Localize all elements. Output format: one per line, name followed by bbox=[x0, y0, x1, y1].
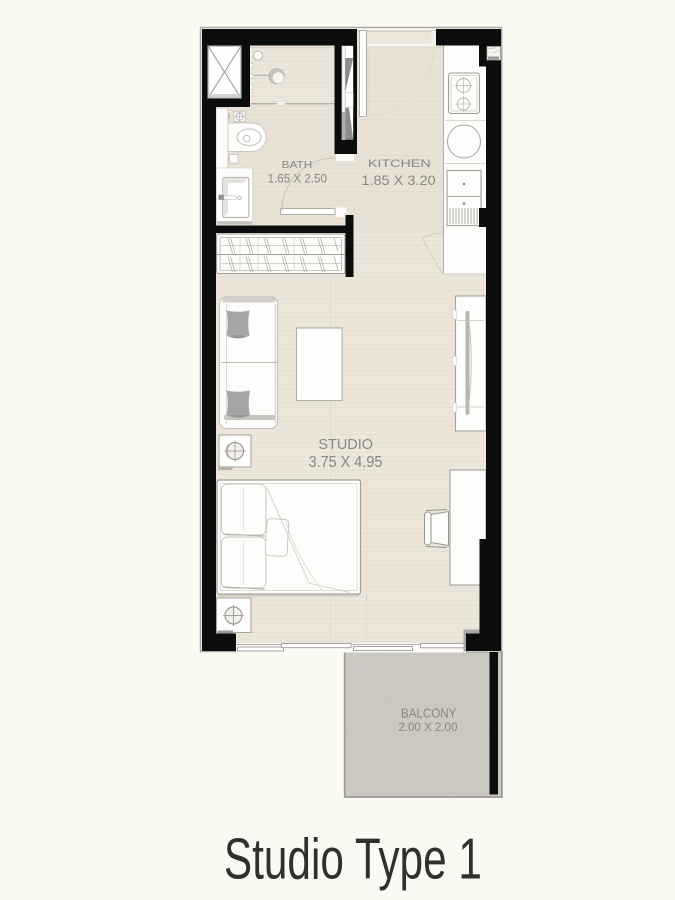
svg-text:1.85 X 3.20: 1.85 X 3.20 bbox=[361, 173, 435, 188]
svg-text:STUDIO: STUDIO bbox=[318, 437, 373, 453]
svg-text:3.75 X 4.95: 3.75 X 4.95 bbox=[309, 454, 383, 471]
svg-text:1.65 X 2.50: 1.65 X 2.50 bbox=[268, 172, 328, 186]
svg-text:Studio Type 1: Studio Type 1 bbox=[224, 828, 482, 892]
svg-text:BATH: BATH bbox=[282, 160, 313, 171]
svg-text:KITCHEN: KITCHEN bbox=[368, 158, 431, 170]
svg-text:BALCONY: BALCONY bbox=[401, 705, 457, 720]
svg-text:2.00 X 2.00: 2.00 X 2.00 bbox=[398, 720, 457, 734]
